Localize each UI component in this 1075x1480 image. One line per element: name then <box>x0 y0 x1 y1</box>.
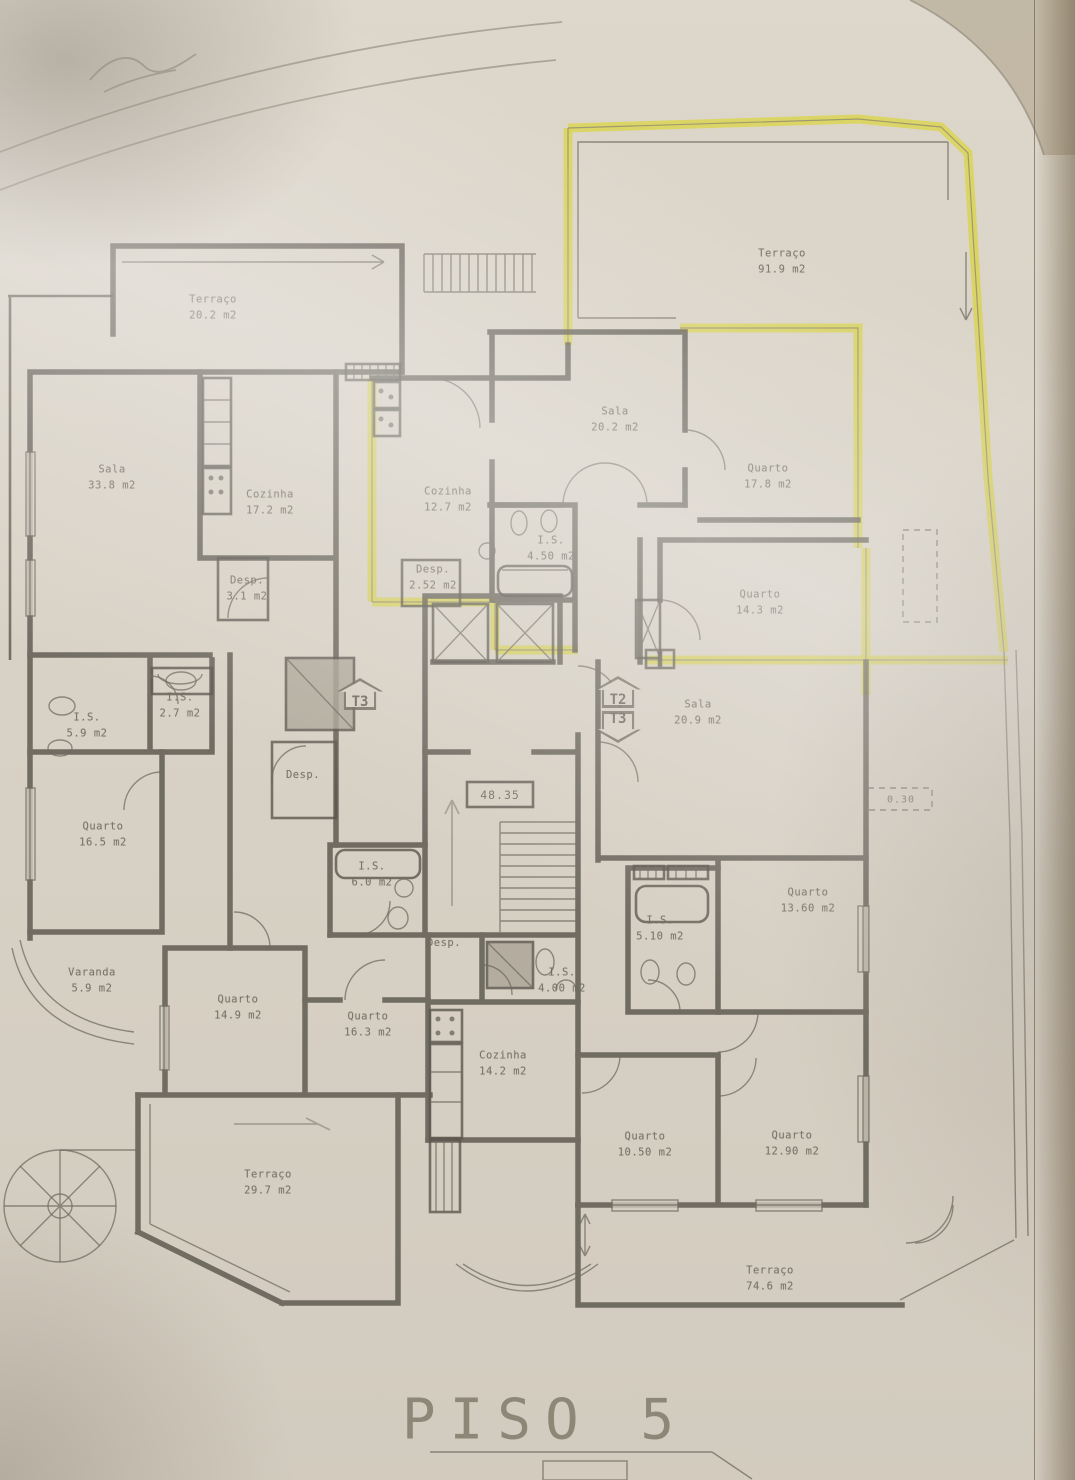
room-label: Desp.2.52 m2 <box>409 562 457 595</box>
room-label: Terraço74.6 m2 <box>746 1263 794 1296</box>
room-label: Quarto10.50 m2 <box>618 1129 673 1162</box>
step-label: 0.30 <box>887 795 915 806</box>
room-label: Terraço20.2 m2 <box>189 292 237 325</box>
room-label: Cozinha17.2 m2 <box>246 487 294 520</box>
room-label: Quarto14.9 m2 <box>214 992 262 1025</box>
room-label: I.S.5.9 m2 <box>67 710 108 743</box>
room-label: Cozinha12.7 m2 <box>424 484 472 517</box>
room-label: I.S.4.50 m2 <box>527 533 575 566</box>
unit-type-badge: T3 <box>337 678 383 710</box>
room-label: Varanda5.9 m2 <box>68 965 116 998</box>
room-label: I.S.5.10 m2 <box>636 913 684 946</box>
room-label: I.S.2.7 m2 <box>160 690 201 723</box>
room-label: Quarto12.90 m2 <box>765 1128 820 1161</box>
unit-type-badge: T3 <box>595 711 641 743</box>
labels-layer: 48.35 0.30 PISO 5 Terraço20.2 m2Terraço9… <box>0 0 1075 1480</box>
unit-type-badge: T2 <box>595 676 641 708</box>
room-label: Quarto14.3 m2 <box>736 587 784 620</box>
scanned-floor-plan: 48.35 0.30 PISO 5 Terraço20.2 m2Terraço9… <box>0 0 1075 1480</box>
elevation-label: 48.35 <box>480 788 520 802</box>
room-label: Sala20.9 m2 <box>674 697 722 730</box>
room-label: Terraço29.7 m2 <box>244 1167 292 1200</box>
room-label: I.S.6.0 m2 <box>352 859 393 892</box>
room-label: Desp.3.1 m2 <box>227 573 268 606</box>
room-label: Quarto13.60 m2 <box>781 885 836 918</box>
room-label: Cozinha14.2 m2 <box>479 1048 527 1081</box>
room-label: Sala33.8 m2 <box>88 462 136 495</box>
room-label: Sala20.2 m2 <box>591 404 639 437</box>
room-label: Quarto17.8 m2 <box>744 461 792 494</box>
room-label: Terraço91.9 m2 <box>758 246 806 279</box>
room-label: Quarto16.5 m2 <box>79 819 127 852</box>
room-label: Quarto16.3 m2 <box>344 1009 392 1042</box>
room-label: Desp. <box>427 935 461 951</box>
room-label: I.S.4.00 m2 <box>538 965 586 998</box>
room-label: Desp. <box>286 767 320 783</box>
floor-title: PISO 5 <box>402 1388 688 1453</box>
